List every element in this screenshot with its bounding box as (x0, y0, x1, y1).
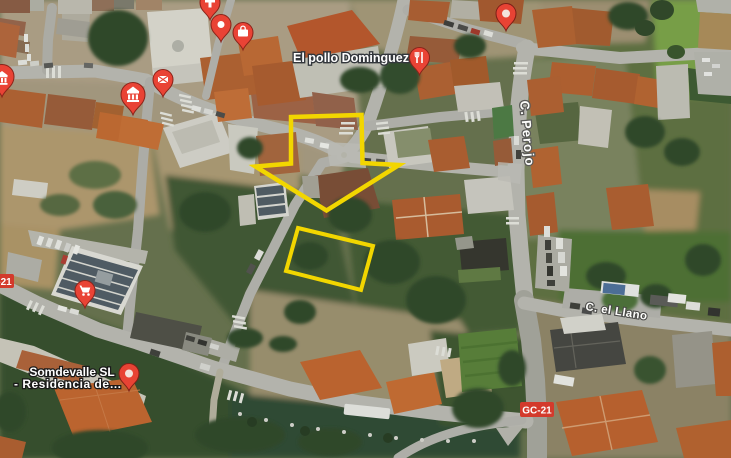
svg-text:El pollo Dominguez: El pollo Dominguez (293, 51, 409, 65)
svg-text:GC-21: GC-21 (0, 277, 12, 288)
svg-text:- Residencia de…: - Residencia de… (14, 377, 122, 391)
svg-text:GC-21: GC-21 (522, 406, 552, 417)
